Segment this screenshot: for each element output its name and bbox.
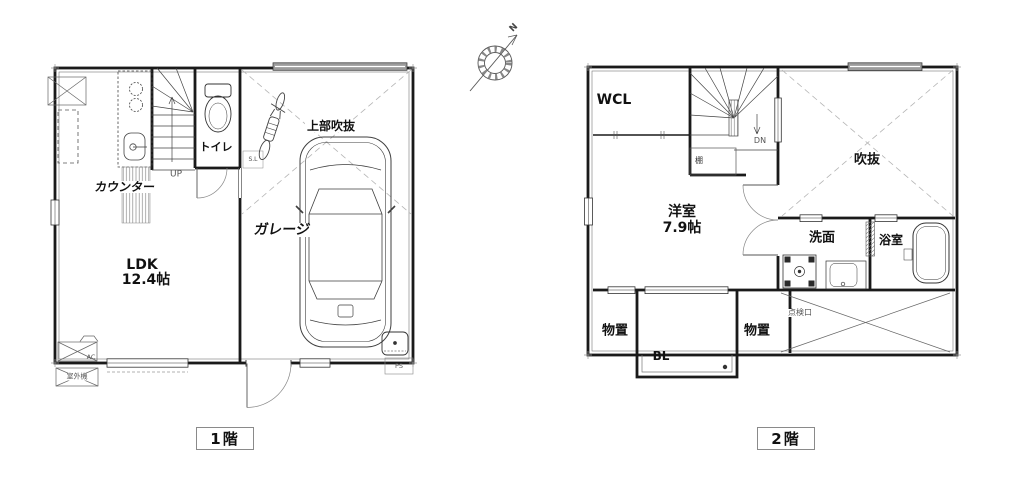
room-door-arcs	[743, 185, 778, 255]
wcl-label: WCL	[597, 93, 632, 107]
washing-machine-icon	[783, 255, 816, 288]
toilet-door-arc	[197, 168, 227, 198]
ldk-name-label: LDK	[126, 258, 157, 272]
car-icon	[296, 137, 395, 347]
counter-hatch	[122, 167, 150, 223]
window	[585, 98, 898, 294]
inspection-area-cross	[781, 293, 950, 352]
bath-folding-door	[866, 222, 875, 256]
void-cross-2f	[782, 70, 953, 216]
floor1-title: 1階	[196, 427, 254, 450]
north-compass-icon	[470, 35, 517, 91]
floor2-title: 2階	[757, 427, 815, 450]
counter-label: カウンター	[92, 181, 158, 193]
floorplan-page: カウンター トイレ UP 上部吹抜 ガレージ LDK 12.4帖 AC 室外機 …	[0, 0, 1024, 485]
upper-void-label: 上部吹抜	[305, 120, 357, 132]
bathroom-label: 浴室	[879, 234, 903, 246]
top-window-bar	[848, 63, 922, 71]
shelf-label: 棚	[693, 157, 705, 165]
motorcycle-icon	[254, 90, 291, 162]
staircase-up	[152, 68, 195, 170]
stairs-down-label: DN	[754, 137, 766, 145]
floor2-plan	[584, 63, 961, 377]
washroom-label: 洗面	[809, 232, 835, 245]
bathtub-icon	[904, 223, 949, 283]
stove-burner-icon	[130, 99, 143, 112]
void-label: 吹抜	[852, 154, 882, 167]
entrance-door-arc	[246, 360, 291, 408]
balcony-label: BL	[653, 350, 670, 362]
water-heater	[382, 332, 408, 355]
storage-left-label: 物置	[602, 325, 628, 338]
floor1-plan	[48, 63, 417, 408]
pipe-space-label: PS	[395, 363, 403, 370]
stairs-up-label: UP	[170, 171, 182, 180]
vanity-icon	[826, 261, 866, 289]
ldk-size-label: 12.4帖	[122, 273, 171, 287]
survey-marks	[584, 63, 961, 359]
outdoor-unit-label: 室外機	[65, 374, 90, 381]
balcony-drain-icon	[723, 365, 727, 369]
kitchen-unit	[118, 71, 152, 167]
ac-label: AC	[87, 354, 96, 361]
garage-shutter	[273, 63, 407, 71]
western-room-name-label: 洋室	[668, 205, 696, 219]
kitchen-sink-icon	[124, 133, 145, 160]
floorplan-drawing	[0, 0, 1024, 485]
refrigerator-space	[58, 110, 78, 163]
stove-burner-icon	[130, 83, 143, 96]
garage-label: ガレージ	[251, 223, 313, 237]
toilet-icon	[205, 84, 231, 132]
storage-right-label: 物置	[744, 325, 770, 338]
toilet-label: トイレ	[200, 142, 233, 153]
survey-marks	[51, 64, 417, 367]
sash-note-label: S.L	[248, 157, 257, 163]
inspection-hatch-label: 点検口	[786, 309, 814, 317]
western-room-size-label: 7.9帖	[663, 221, 702, 235]
